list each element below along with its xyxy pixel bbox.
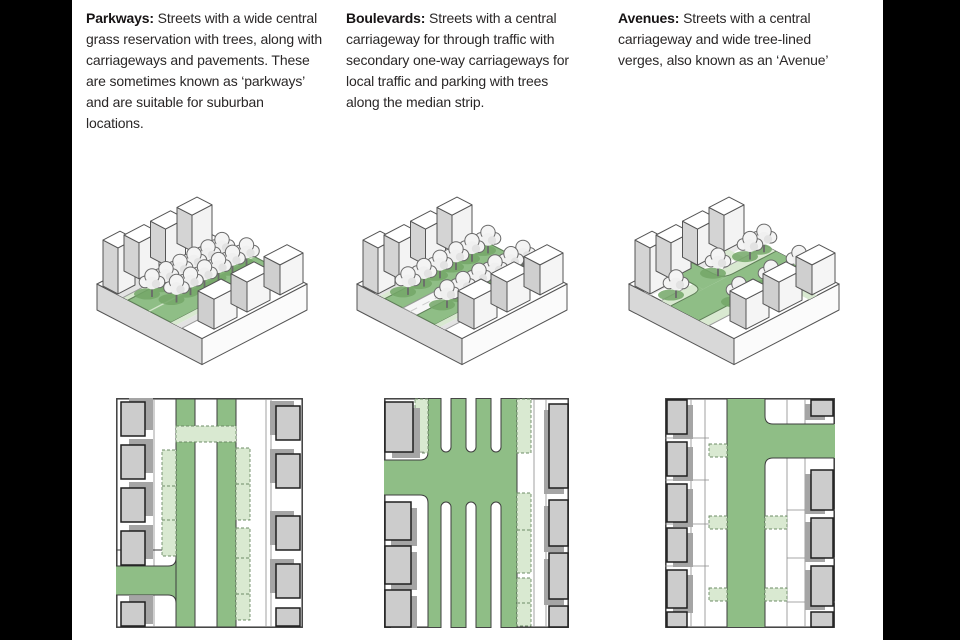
avenues-plan-figure xyxy=(665,398,835,630)
section-avenues: Avenues: Streets with a central carriage… xyxy=(618,0,858,640)
boulevards-plan-figure xyxy=(384,398,569,630)
left-buildings xyxy=(667,400,693,627)
parkways-term: Parkways: xyxy=(86,10,154,26)
avenues-term: Avenues: xyxy=(618,10,679,26)
avenues-isometric-illustration xyxy=(618,166,850,373)
parkways-isometric-illustration xyxy=(86,166,318,373)
document-page: Parkways: Streets with a wide central gr… xyxy=(72,0,883,640)
section-boulevards: Boulevards: Streets with a central carri… xyxy=(346,0,586,640)
boulevards-isometric-figure xyxy=(346,166,578,376)
median-islands xyxy=(441,398,501,628)
letterboxed-stage: Parkways: Streets with a wide central gr… xyxy=(0,0,960,640)
avenues-isometric-figure xyxy=(618,166,850,376)
section-parkways: Parkways: Streets with a wide central gr… xyxy=(86,0,326,640)
parkways-plan-illustration xyxy=(116,398,303,628)
boulevards-isometric-illustration xyxy=(346,166,578,373)
avenues-description: Avenues: Streets with a central carriage… xyxy=(618,8,856,71)
parkways-description-text: Streets with a wide central grass reserv… xyxy=(86,10,322,131)
avenues-plan-illustration xyxy=(665,398,835,628)
parkways-plan-figure xyxy=(116,398,303,630)
parkways-description: Parkways: Streets with a wide central gr… xyxy=(86,8,324,134)
right-buildings xyxy=(544,404,568,627)
boulevards-plan-illustration xyxy=(384,398,569,628)
parkways-isometric-figure xyxy=(86,166,318,376)
boulevards-description: Boulevards: Streets with a central carri… xyxy=(346,8,584,113)
boulevards-term: Boulevards: xyxy=(346,10,425,26)
